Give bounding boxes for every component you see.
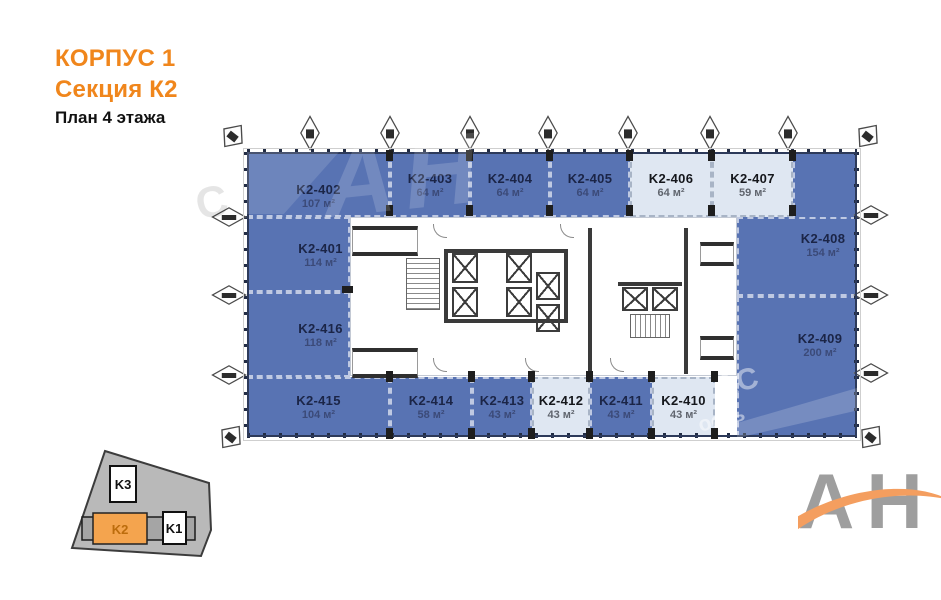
wall-pier: [708, 205, 715, 216]
apartment-K2-412[interactable]: K2-412 43 м²: [532, 377, 590, 437]
apartment-K2-403[interactable]: K2-403 64 м²: [390, 152, 470, 217]
apartment-number: K2-415: [296, 393, 340, 408]
apartment-K2-415[interactable]: K2-415 104 м²: [247, 377, 390, 437]
wall-pier: [528, 428, 535, 439]
apartment-K2-413[interactable]: K2-413 43 м²: [472, 377, 532, 437]
wall-pier: [711, 371, 718, 382]
building-title: КОРПУС 1: [55, 44, 178, 75]
apartment-area: 43 м²: [547, 409, 574, 421]
apartment-number: K2-416: [298, 321, 342, 336]
shaft-box: [352, 226, 418, 256]
wall-pier: [386, 150, 393, 161]
apartment-number: K2-405: [568, 171, 612, 186]
wall-pier: [626, 150, 633, 161]
apartment-area: 58 м²: [417, 409, 444, 421]
apartment-number: K2-404: [488, 171, 532, 186]
apartment-number: K2-411: [599, 393, 643, 408]
wall-pier: [386, 428, 393, 439]
wall-pier: [789, 205, 796, 216]
apartment-K2-406[interactable]: K2-406 64 м²: [630, 152, 712, 217]
apartment-K2-407[interactable]: K2-407 59 м²: [712, 152, 793, 217]
axis-marker-icon: [459, 113, 481, 153]
apartment-K2-402[interactable]: K2-402 107 м²: [247, 152, 390, 217]
apartment-number: K2-412: [539, 393, 583, 408]
axis-marker-icon: [617, 113, 639, 153]
axis-marker-icon: [299, 113, 321, 153]
apartment-number: K2-406: [649, 171, 693, 186]
wall-pier: [466, 150, 473, 161]
apartment-number: K2-402: [296, 182, 340, 197]
apartment-area: 104 м²: [302, 409, 335, 421]
wall-pier: [586, 428, 593, 439]
apartment-area: 200 м²: [803, 347, 836, 359]
apartment-K2-410[interactable]: K2-410 43 м²: [652, 377, 715, 437]
floor-title: План 4 этажа: [55, 107, 178, 129]
core-wall: [618, 282, 682, 286]
apartment-K2-411[interactable]: K2-411 43 м²: [590, 377, 652, 437]
axis-marker-icon: [209, 206, 249, 228]
site-label-K1: K1: [166, 521, 183, 536]
site-label-K3: K3: [115, 477, 132, 492]
apartment-area: 43 м²: [607, 409, 634, 421]
apartment-number: K2-408: [801, 231, 845, 246]
axis-marker-icon: [699, 113, 721, 153]
wall-pier: [546, 205, 553, 216]
elevator-icon: [506, 287, 532, 317]
apartment-area: 64 м²: [496, 187, 523, 199]
apartment-number: K2-401: [298, 241, 342, 256]
core-wall: [588, 228, 592, 374]
apartment-area: 114 м²: [304, 257, 337, 269]
axis-marker-icon: [777, 113, 799, 153]
apartment-K2-405[interactable]: K2-405 64 м²: [550, 152, 630, 217]
apartment-area: 154 м²: [806, 247, 839, 259]
apartment-K2-408-wing[interactable]: [793, 152, 857, 219]
apartment-K2-404[interactable]: K2-404 64 м²: [470, 152, 550, 217]
apartment-area: 64 м²: [576, 187, 603, 199]
axis-marker-icon: [379, 113, 401, 153]
wall-pier: [468, 371, 475, 382]
wall-pier: [528, 371, 535, 382]
core-wall: [444, 249, 448, 323]
axis-marker-icon: [209, 364, 249, 386]
elevator-icon: [652, 287, 678, 311]
site-plan: K3 K2 K1: [62, 442, 214, 569]
staircase-icon: [630, 314, 670, 338]
apartment-area: 107 м²: [302, 198, 335, 210]
elevator-icon: [452, 253, 478, 283]
axis-marker-icon: [851, 362, 891, 384]
wall-pier: [468, 428, 475, 439]
windows-bottom: [247, 433, 857, 438]
wall-pier: [386, 205, 393, 216]
wall-pier: [386, 371, 393, 382]
apartment-area: 64 м²: [416, 187, 443, 199]
apartment-number: K2-414: [409, 393, 453, 408]
wall-pier: [708, 150, 715, 161]
wall-pier: [342, 286, 353, 293]
logo-letters: АН: [798, 458, 935, 544]
apartment-area: 59 м²: [739, 187, 766, 199]
wall-pier: [546, 150, 553, 161]
elevator-icon: [622, 287, 648, 311]
wall-pier: [586, 371, 593, 382]
site-label-K2: K2: [112, 522, 129, 537]
apartment-area: 118 м²: [304, 337, 337, 349]
plan-header: КОРПУС 1 Секция К2 План 4 этажа: [55, 44, 178, 129]
axis-marker-icon: [851, 284, 891, 306]
axis-marker-icon: [537, 113, 559, 153]
elevator-icon: [452, 287, 478, 317]
apartment-K2-408[interactable]: K2-408 154 м²: [737, 217, 857, 296]
core-wall: [564, 249, 568, 323]
apartment-number: K2-413: [480, 393, 524, 408]
staircase-icon: [406, 258, 440, 310]
apartment-K2-409[interactable]: K2-409 200 м²: [737, 296, 857, 437]
wall-pier: [711, 428, 718, 439]
axis-marker-icon: [851, 204, 891, 226]
apartment-number: K2-410: [661, 393, 705, 408]
core-wall: [684, 228, 688, 374]
apartment-area: 43 м²: [488, 409, 515, 421]
section-title: Секция К2: [55, 75, 178, 106]
elevator-icon: [536, 272, 560, 300]
apartment-area: 64 м²: [657, 187, 684, 199]
wall-pier: [466, 205, 473, 216]
apartment-number: K2-409: [798, 331, 842, 346]
page: { "header": { "building": "КОРПУС 1", "s…: [0, 0, 941, 600]
apartment-number: K2-407: [730, 171, 774, 186]
wall-pier: [626, 205, 633, 216]
elevator-icon: [536, 304, 560, 332]
elevator-icon: [506, 253, 532, 283]
apartment-K2-414[interactable]: K2-414 58 м²: [390, 377, 472, 437]
wall-pier: [648, 371, 655, 382]
shaft-box: [352, 348, 418, 378]
apartment-K2-416[interactable]: K2-416 118 м²: [247, 292, 350, 377]
wall-pier: [648, 428, 655, 439]
wall-pier: [789, 150, 796, 161]
agency-logo: АН: [798, 458, 941, 544]
apartment-number: K2-403: [408, 171, 452, 186]
shaft-box: [700, 242, 734, 266]
axis-marker-icon: [209, 284, 249, 306]
shaft-box: [700, 336, 734, 360]
apartment-area: 43 м²: [670, 409, 697, 421]
apartment-K2-401[interactable]: K2-401 114 м²: [247, 217, 350, 292]
